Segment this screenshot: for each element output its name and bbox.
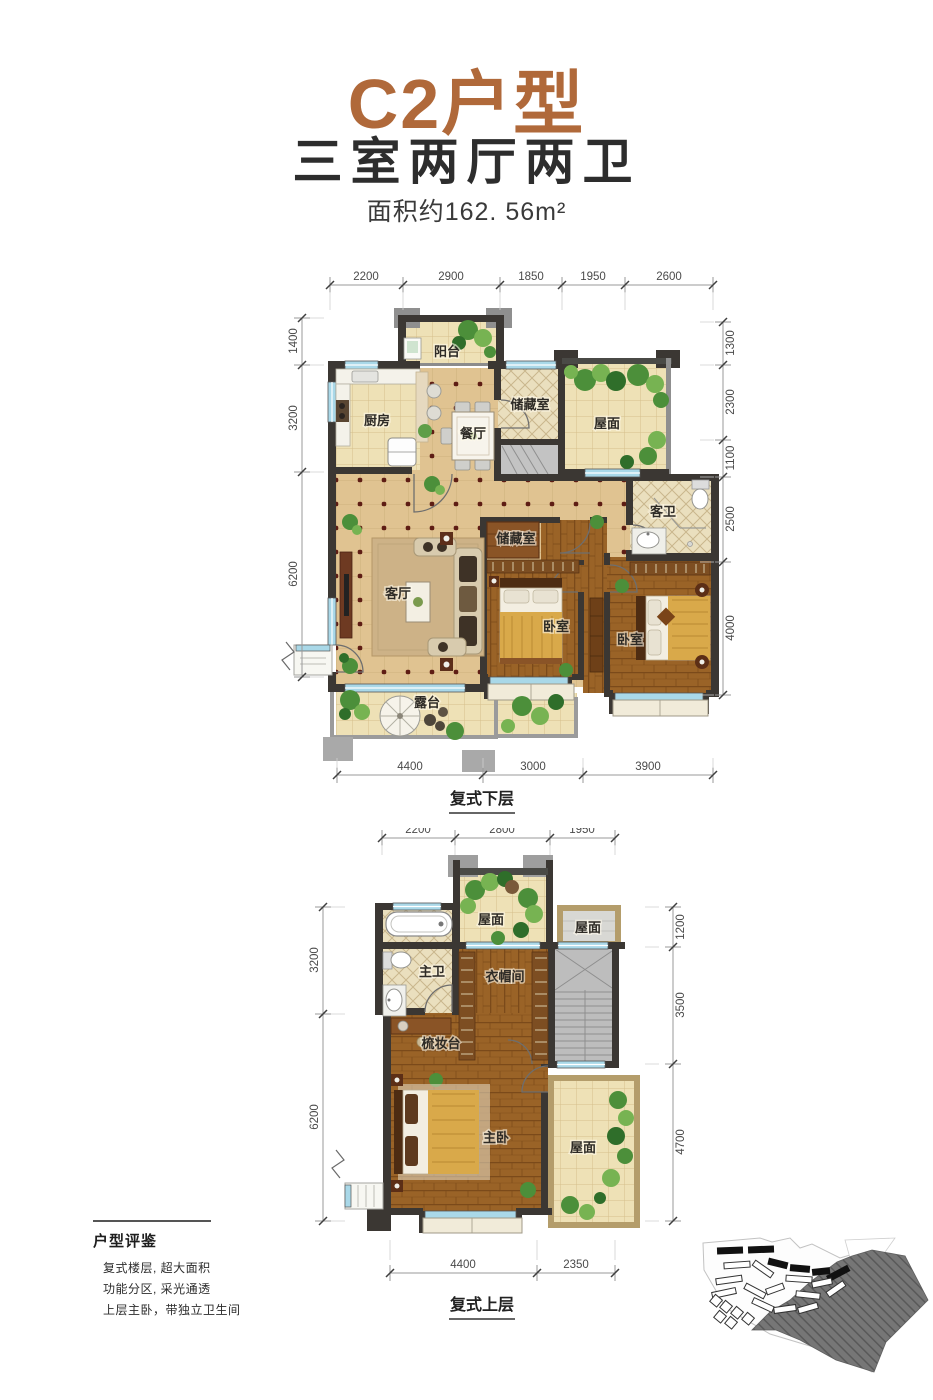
- room-label-master-bath: 主卫: [419, 964, 445, 979]
- dim-top-2: 2900: [438, 271, 464, 283]
- site-plan: [698, 1232, 933, 1382]
- u-dim-left-1: 3200: [309, 947, 321, 973]
- room-label-roof-side: 屋面: [575, 920, 601, 935]
- u-dim-bottom-2: 2350: [563, 1259, 589, 1271]
- review-divider: [93, 1220, 211, 1222]
- u-dim-right-2: 3500: [675, 992, 687, 1018]
- room-label-guest-bath: 客卫: [650, 504, 676, 519]
- dim-left-2: 3200: [288, 405, 300, 431]
- room-label-roof: 屋面: [594, 416, 620, 431]
- room-label-dresser: 梳妆台: [421, 1036, 460, 1051]
- plan-upper: 屋面 屋面 主卫 衣帽间 梳妆台 主卧 屋面: [300, 828, 700, 1330]
- review-line-3: 上层主卧，带独立卫生间: [103, 1301, 263, 1318]
- room-label-master-bedroom: 主卧: [483, 1130, 509, 1145]
- plan-upper-caption: 复式上层: [449, 1295, 514, 1314]
- dim-right-4: 2500: [725, 506, 737, 532]
- room-label-roof-main: 屋面: [478, 912, 504, 927]
- dim-left-1: 1400: [288, 328, 300, 354]
- room-label-cloakroom: 衣帽间: [485, 969, 524, 984]
- plan-lower: 阳台 厨房 餐厅 储藏室 屋面 客卫 客厅 储藏室 卧室 卧室 露台: [230, 250, 790, 820]
- room-label-bedroom-1: 卧室: [543, 619, 569, 634]
- dim-right-5: 4000: [725, 615, 737, 641]
- room-label-balcony: 阳台: [434, 344, 460, 359]
- dim-top-5: 2600: [656, 271, 682, 283]
- plan-lower-caption: 复式下层: [449, 789, 514, 808]
- dim-bottom-1: 4400: [397, 761, 423, 773]
- room-label-storage-mid: 储藏室: [495, 531, 535, 546]
- u-dim-right-1: 1200: [675, 914, 687, 940]
- dim-right-2: 2300: [725, 389, 737, 415]
- room-label-terrace: 露台: [414, 695, 440, 710]
- u-dim-bottom-1: 4400: [450, 1259, 476, 1271]
- u-dim-right-3: 4700: [675, 1129, 687, 1155]
- dim-top-1: 2200: [353, 271, 379, 283]
- unit-review-block: 户型评鉴 复式楼层, 超大面积 功能分区, 采光通透 上层主卧，带独立卫生间: [93, 1220, 263, 1322]
- dim-bottom-3: 3900: [635, 761, 661, 773]
- dim-left-3: 6200: [288, 561, 300, 587]
- dim-right-1: 1300: [725, 330, 737, 356]
- review-line-2: 功能分区, 采光通透: [103, 1280, 263, 1297]
- room-label-bedroom-2: 卧室: [617, 632, 643, 647]
- dim-bottom-2: 3000: [520, 761, 546, 773]
- u-dim-top-1: 2200: [405, 828, 431, 836]
- u-dim-top-3: 1950: [569, 828, 595, 836]
- page-subtitle: 三室两厅两卫: [0, 122, 933, 194]
- review-title: 户型评鉴: [93, 1230, 263, 1251]
- dim-right-3: 1100: [725, 446, 737, 471]
- dim-top-4: 1950: [580, 271, 606, 283]
- page-area-text: 面积约162. 56m²: [0, 192, 933, 228]
- dim-top-3: 1850: [518, 271, 544, 283]
- room-label-living: 客厅: [385, 586, 411, 601]
- room-label-storage-top: 储藏室: [509, 397, 549, 412]
- room-label-dining: 餐厅: [459, 426, 486, 441]
- u-dim-top-2: 2800: [489, 828, 515, 836]
- room-label-roof-lower: 屋面: [570, 1140, 596, 1155]
- floorplan-sheet: C2户型 三室两厅两卫 面积约162. 56m²: [0, 0, 933, 1400]
- room-label-kitchen: 厨房: [364, 413, 390, 428]
- review-line-1: 复式楼层, 超大面积: [103, 1259, 263, 1276]
- u-dim-left-2: 6200: [309, 1104, 321, 1130]
